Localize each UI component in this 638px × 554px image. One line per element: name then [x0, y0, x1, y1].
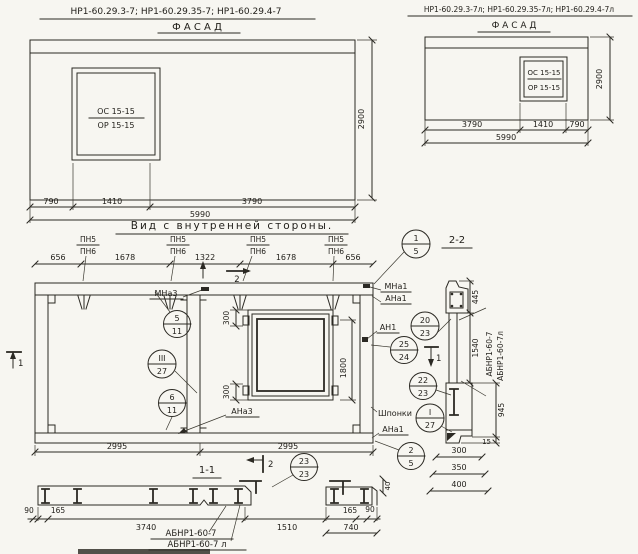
svg-text:22: 22 — [418, 376, 428, 385]
svg-text:6: 6 — [169, 393, 174, 402]
svg-text:АН1: АН1 — [380, 323, 397, 332]
drawing-sheet: НР1-60.29.3-7; НР1-60.29.35-7; НР1-60.29… — [0, 0, 638, 554]
svg-text:23: 23 — [299, 457, 309, 466]
label-an1: АН1 — [362, 323, 399, 342]
svg-text:ПН6: ПН6 — [328, 247, 344, 256]
facade-title-left: Ф А С А Д — [172, 22, 222, 33]
dim-90-left: 90 — [24, 506, 34, 515]
dim-165-right: 165 — [343, 506, 358, 515]
svg-text:25: 25 — [399, 340, 409, 349]
dim-300: 300 — [451, 446, 466, 455]
svg-text:I: I — [429, 408, 431, 417]
window-mark-os: ОС 15-15 — [97, 107, 135, 116]
balloon-23-23: 23 23 — [272, 454, 318, 488]
balloon-2-5: 2 5 — [375, 441, 425, 470]
svg-text:Шпонки: Шпонки — [378, 409, 412, 418]
section-1-1-title: 1-1 — [199, 465, 215, 476]
balloon-20-23: 20 23 — [411, 312, 451, 340]
svg-text:20: 20 — [420, 316, 430, 325]
dim-40: 40 — [384, 482, 392, 491]
svg-text:МНа1: МНа1 — [385, 282, 408, 291]
svg-text:III: III — [158, 354, 165, 363]
dim-740: 740 — [343, 523, 358, 532]
section-1-1-marks: АБНР1-60-7 АБНР1-60-7 л — [149, 505, 246, 550]
svg-text:ПН6: ПН6 — [170, 247, 186, 256]
dim-790: 790 — [569, 120, 584, 129]
dim-1510: 1510 — [277, 523, 297, 532]
dim-2995: 2995 — [107, 442, 127, 451]
svg-text:АНа1: АНа1 — [385, 294, 406, 303]
dim-656: 656 — [345, 253, 360, 262]
inner-view: Вид с внутренней стороны. ПН5 ПН6 ПН5 ПН… — [7, 220, 452, 470]
svg-text:2: 2 — [408, 446, 413, 455]
dim-1540: 1540 — [471, 338, 480, 357]
label-ana1-top: АНа1 — [372, 294, 411, 304]
section-cut-2-marker-top: 2 — [200, 261, 251, 285]
section-cut-1-marker-right: 1 — [425, 347, 441, 367]
svg-text:ПН5: ПН5 — [250, 235, 266, 244]
svg-text:АБНР1-60-7 л: АБНР1-60-7 л — [167, 540, 226, 550]
section-2-2: 2-2 445 1540 945 15 300 350 400 — [427, 235, 506, 494]
facade-right-view: ОС 15-15 ОР 15-15 3790 1410 790 5990 290… — [422, 34, 614, 146]
dim-300-top: 300 — [222, 311, 231, 326]
svg-text:1: 1 — [436, 354, 441, 364]
svg-text:ПН6: ПН6 — [80, 247, 96, 256]
dim-790: 790 — [43, 197, 58, 206]
label-ana3: АНа3 — [178, 407, 259, 434]
svg-text:АБНР1-60-7л: АБНР1-60-7л — [496, 331, 505, 381]
header-left: НР1-60.29.3-7; НР1-60.29.35-7; НР1-60.29… — [40, 7, 315, 33]
balloon-1-5: 1 5 — [374, 230, 430, 284]
svg-text:2: 2 — [268, 460, 273, 470]
panel-marks-left: НР1-60.29.3-7; НР1-60.29.35-7; НР1-60.29… — [71, 7, 282, 17]
dim-1322: 1322 — [195, 253, 215, 262]
dim-165-left: 165 — [51, 506, 66, 515]
dim-1410: 1410 — [102, 197, 122, 206]
dim-2995: 2995 — [278, 442, 298, 451]
label-ana1-bottom: АНа1 — [372, 425, 408, 438]
svg-text:ПН5: ПН5 — [80, 235, 96, 244]
svg-text:5: 5 — [408, 459, 413, 468]
svg-text:АБНР1-60-7: АБНР1-60-7 — [166, 529, 217, 539]
dim-656: 656 — [50, 253, 65, 262]
balloon-III-27: III 27 — [148, 350, 197, 393]
window-mark-os: ОС 15-15 — [528, 69, 561, 77]
svg-text:1: 1 — [18, 359, 23, 369]
svg-text:5: 5 — [413, 247, 418, 256]
scan-artifact — [78, 549, 210, 554]
svg-text:23: 23 — [420, 329, 430, 338]
anchor-label-pn-4: ПН5 ПН6 — [325, 235, 347, 281]
svg-text:23: 23 — [418, 389, 428, 398]
balloon-25-24: 25 24 — [371, 337, 418, 364]
header-right: НР1-60.29.3-7л; НР1-60.29.35-7л; НР1-60.… — [408, 5, 632, 32]
balloon-22-23: 22 23 — [410, 373, 452, 400]
section-cut-2-marker-bottom: 2 — [246, 456, 273, 472]
section-2-2-title: 2-2 — [449, 235, 465, 246]
window-mark-or: ОР 15-15 — [528, 84, 560, 92]
inner-view-title: Вид с внутренней стороны. — [131, 220, 334, 232]
dim-15: 15 — [482, 438, 491, 446]
dim-445: 445 — [471, 290, 480, 305]
svg-text:24: 24 — [399, 353, 409, 362]
panel-marks-right: НР1-60.29.3-7л; НР1-60.29.35-7л; НР1-60.… — [424, 5, 614, 14]
dim-945: 945 — [497, 403, 506, 418]
dim-90-right: 90 — [365, 505, 375, 514]
svg-text:1: 1 — [413, 234, 418, 243]
svg-text:АНа1: АНа1 — [382, 425, 403, 434]
anchor-label-pn-2: ПН5 ПН6 — [167, 235, 189, 281]
dim-3740: 3740 — [136, 523, 156, 532]
dim-3790: 3790 — [462, 120, 482, 129]
dim-1410: 1410 — [533, 120, 553, 129]
facade-title-right: Ф А С А Д — [492, 21, 537, 31]
section-cut-1-marker-left: 1 — [7, 351, 23, 369]
svg-text:АНа3: АНа3 — [231, 407, 252, 416]
dim-2900: 2900 — [357, 109, 366, 129]
section-1-1: 1-1 2 23 23 40 90 165 165 90 — [24, 454, 392, 554]
svg-text:27: 27 — [157, 367, 167, 376]
dim-5990: 5990 — [496, 133, 516, 142]
label-shponki: Шпонки — [371, 407, 412, 418]
svg-text:11: 11 — [172, 327, 182, 336]
svg-text:МНа3: МНа3 — [155, 289, 178, 298]
facade-left-view: ОС 15-15 ОР 15-15 790 1410 3790 5990 290… — [27, 37, 377, 223]
anchor-label-pn-3: ПН5 ПН6 — [243, 235, 269, 281]
dim-1678: 1678 — [276, 253, 296, 262]
svg-text:27: 27 — [425, 421, 435, 430]
svg-text:11: 11 — [167, 406, 177, 415]
svg-text:ПН6: ПН6 — [250, 247, 266, 256]
anchor-label-pn-1: ПН5 ПН6 — [77, 235, 99, 281]
svg-text:ПН5: ПН5 — [328, 235, 344, 244]
svg-text:ПН5: ПН5 — [170, 235, 186, 244]
svg-text:АБНР1-60-7: АБНР1-60-7 — [485, 331, 494, 376]
dim-1678: 1678 — [115, 253, 135, 262]
balloon-I-27: I 27 — [416, 404, 452, 432]
dim-400: 400 — [451, 480, 466, 489]
dim-1800: 1800 — [339, 358, 348, 378]
dim-350: 350 — [451, 463, 466, 472]
panel-drawing: НР1-60.29.3-7; НР1-60.29.35-7; НР1-60.29… — [0, 0, 638, 554]
svg-text:5: 5 — [174, 314, 179, 323]
dim-5990: 5990 — [190, 210, 210, 219]
svg-text:23: 23 — [299, 470, 309, 479]
dim-3790: 3790 — [242, 197, 262, 206]
balloon-6-11: 6 11 — [159, 390, 187, 431]
window-mark-or: ОР 15-15 — [98, 121, 135, 130]
dim-300-bottom: 300 — [222, 385, 231, 400]
dim-2900: 2900 — [595, 69, 604, 89]
